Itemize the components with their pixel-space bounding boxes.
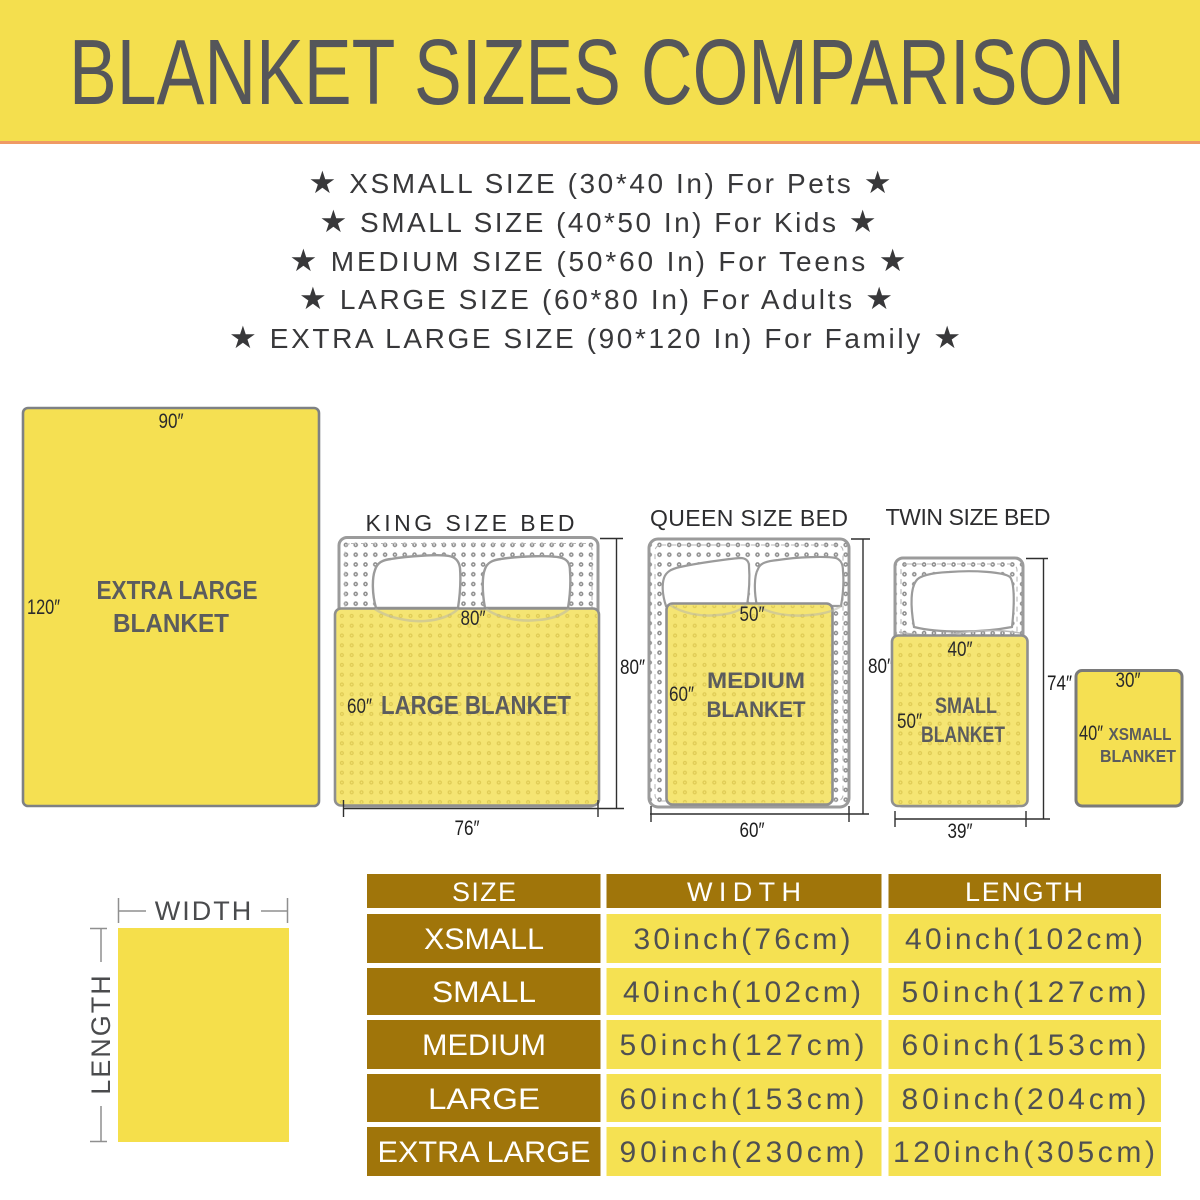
- svg-text:EXTRA LARGE: EXTRA LARGE: [378, 1136, 591, 1169]
- svg-text:★ LARGE SIZE (60*80 In) For A: ★ LARGE SIZE (60*80 In) For Adults ★: [299, 281, 893, 316]
- svg-text:XSMALL: XSMALL: [1109, 724, 1172, 744]
- svg-text:LARGE BLANKET: LARGE BLANKET: [381, 690, 571, 720]
- svg-text:80″: 80″: [868, 655, 893, 678]
- svg-text:80″: 80″: [461, 607, 486, 630]
- svg-text:60″: 60″: [347, 695, 372, 718]
- svg-text:EXTRA LARGE: EXTRA LARGE: [97, 577, 258, 605]
- svg-text:SMALL: SMALL: [935, 693, 997, 718]
- svg-text:30″: 30″: [1116, 669, 1141, 692]
- svg-text:80″: 80″: [620, 656, 645, 679]
- svg-text:QUEEN SIZE BED: QUEEN SIZE BED: [650, 505, 848, 531]
- svg-text:76″: 76″: [455, 817, 480, 840]
- svg-text:MEDIUM: MEDIUM: [422, 1029, 546, 1062]
- svg-text:BLANKET: BLANKET: [1100, 746, 1176, 766]
- svg-text:TWIN SIZE BED: TWIN SIZE BED: [886, 504, 1051, 530]
- svg-text:★ XSMALL SIZE (30*40 In) For: ★ XSMALL SIZE (30*40 In) For Pets ★: [309, 165, 892, 200]
- svg-text:WIDTH: WIDTH: [155, 896, 253, 926]
- svg-text:40″: 40″: [948, 638, 973, 661]
- svg-text:KING SIZE BED: KING SIZE BED: [366, 510, 575, 536]
- svg-text:60″: 60″: [669, 683, 694, 706]
- svg-text:120″: 120″: [27, 596, 60, 619]
- svg-text:50″: 50″: [897, 710, 922, 733]
- svg-text:WIDTH: WIDTH: [687, 877, 801, 907]
- svg-text:BLANKET: BLANKET: [921, 722, 1005, 747]
- svg-text:MEDIUM: MEDIUM: [707, 668, 805, 693]
- svg-text:LARGE: LARGE: [428, 1083, 540, 1116]
- svg-text:XSMALL: XSMALL: [424, 923, 544, 956]
- svg-text:SMALL: SMALL: [432, 976, 536, 1009]
- svg-text:LENGTH: LENGTH: [86, 973, 116, 1095]
- svg-text:74″: 74″: [1047, 672, 1072, 695]
- svg-text:60″: 60″: [740, 819, 765, 842]
- svg-text:★ EXTRA LARGE SIZE (90*120 In: ★ EXTRA LARGE SIZE (90*120 In) For Famil…: [229, 320, 961, 355]
- svg-text:BLANKET SIZES COMPARISON: BLANKET SIZES COMPARISON: [69, 20, 1125, 124]
- svg-text:39″: 39″: [948, 820, 973, 843]
- svg-text:SIZE: SIZE: [452, 877, 516, 907]
- svg-text:90″: 90″: [159, 410, 184, 433]
- svg-text:50″: 50″: [740, 603, 765, 626]
- svg-text:LENGTH: LENGTH: [965, 877, 1083, 907]
- svg-text:30inch(76cm): 30inch(76cm): [634, 923, 851, 956]
- svg-text:BLANKET: BLANKET: [113, 610, 229, 638]
- svg-text:40″: 40″: [1079, 722, 1103, 745]
- svg-text:★ MEDIUM SIZE (50*60 In) For: ★ MEDIUM SIZE (50*60 In) For Teens ★: [290, 243, 907, 278]
- svg-text:BLANKET: BLANKET: [707, 697, 807, 722]
